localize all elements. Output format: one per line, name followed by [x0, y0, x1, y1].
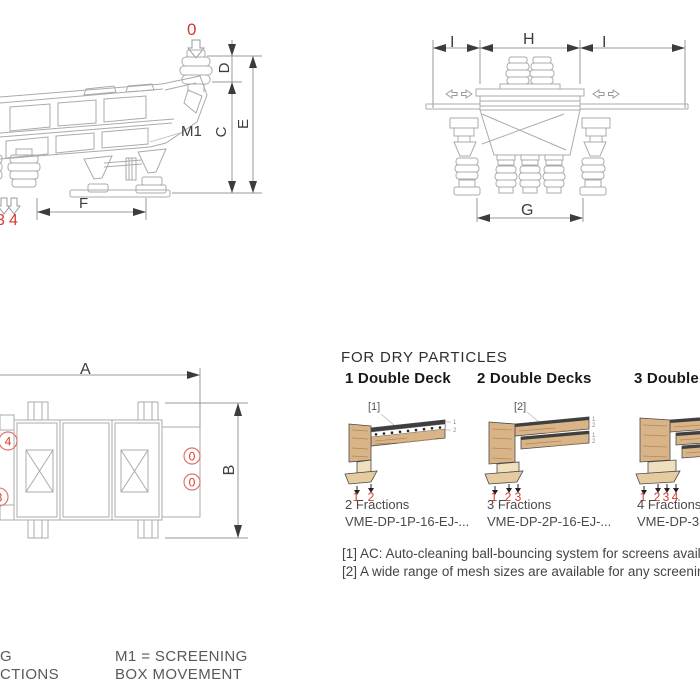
slide-arrow-right-icon — [609, 90, 620, 98]
deck-3-title: 3 Double Decks — [634, 370, 700, 387]
deck-1-fractions: 2 Fractions — [345, 497, 409, 512]
slide-arrow-left-icon — [593, 90, 604, 98]
marker-0-top: 0 — [189, 450, 196, 464]
inlet-arrow-icon — [188, 40, 204, 58]
marker-3: 3 — [0, 491, 3, 505]
supports-and-base — [70, 149, 170, 197]
top-view-drawing: 4 3 0 0 A B — [0, 355, 265, 555]
front-view-drawing: I H I G — [420, 20, 700, 235]
top-view-dimension-a — [0, 368, 200, 427]
legend-m1-line-1: M1 = SCREENING — [115, 648, 248, 665]
legend-left-fragment-1: G — [0, 648, 12, 665]
dim-label-c: C — [212, 123, 230, 141]
slide-arrow-left-icon — [446, 90, 457, 98]
deck-2-title: 2 Double Decks — [477, 370, 592, 387]
front-view-svg — [420, 20, 700, 235]
deck-1-model: VME-DP-1P-16-EJ-... — [345, 514, 469, 529]
m1-leader-line — [150, 133, 180, 142]
deck-2-diagram: 1 2 1 2 1 2 3 — [485, 412, 609, 502]
dim-label-g: G — [521, 202, 533, 220]
outlet-marker-4: 4 — [9, 212, 18, 230]
deck-3-fractions: 4 Fractions — [637, 497, 700, 512]
legend-left-fragment-2: CTIONS — [0, 666, 59, 683]
dim-label-b: B — [221, 461, 239, 479]
marker-4: 4 — [5, 435, 12, 449]
front-side-supports — [450, 118, 610, 195]
legend-m1-line-2: BOX MOVEMENT — [115, 666, 242, 683]
deck-3-model: VME-DP-3P-1 — [637, 514, 700, 529]
outlet-marker-3: 3 — [0, 212, 5, 230]
deck-2-model: VME-DP-2P-16-EJ-... — [487, 514, 611, 529]
dim-label-i-left: I — [450, 34, 454, 52]
slide-arrow-right-icon — [462, 90, 473, 98]
datasheet-page: 0 D C E F M1 3 4 — [0, 0, 700, 700]
deck-1-diagram: 1 2 1 2 — [345, 412, 469, 502]
deck-1-side-mark-2: 2 — [453, 428, 457, 434]
deck-1-title: 1 Double Deck — [345, 370, 451, 387]
side-view-svg — [0, 0, 270, 240]
top-view-svg: 4 3 0 0 — [0, 355, 265, 555]
front-outlet-bellows — [495, 160, 565, 193]
top-view-markers: 4 3 0 0 — [0, 432, 200, 506]
side-view-drawing: 0 D C E F M1 3 4 — [0, 0, 270, 240]
deck-2-side-mark-4: 2 — [592, 439, 596, 445]
footnote-1: [1] AC: Auto-cleaning ball-bouncing syst… — [342, 546, 700, 561]
dim-label-h: H — [523, 31, 535, 49]
front-hopper — [480, 110, 580, 160]
front-view-dimensions-top — [433, 40, 685, 108]
screen-box-body — [0, 76, 207, 159]
deck-2-fractions: 3 Fractions — [487, 497, 551, 512]
dim-label-f: F — [79, 195, 88, 212]
dim-label-d: D — [215, 59, 233, 77]
deck-1-side-mark-1: 1 — [453, 420, 457, 426]
marker-0-bottom: 0 — [189, 476, 196, 490]
dim-label-e: E — [234, 115, 252, 133]
top-view-body — [0, 402, 200, 538]
front-inlet-bellows — [500, 57, 560, 89]
footnote-2: [2] A wide range of mesh sizes are avail… — [342, 564, 700, 579]
dry-particles-title: FOR DRY PARTICLES — [341, 349, 508, 366]
deck-3-diagram: 1 2 3 4 — [636, 412, 700, 502]
m1-label: M1 — [181, 123, 202, 140]
dim-label-i-right: I — [602, 34, 606, 52]
inlet-marker: 0 — [187, 20, 196, 40]
deck-2-side-mark-2: 2 — [592, 423, 596, 429]
dim-label-a: A — [80, 361, 91, 379]
